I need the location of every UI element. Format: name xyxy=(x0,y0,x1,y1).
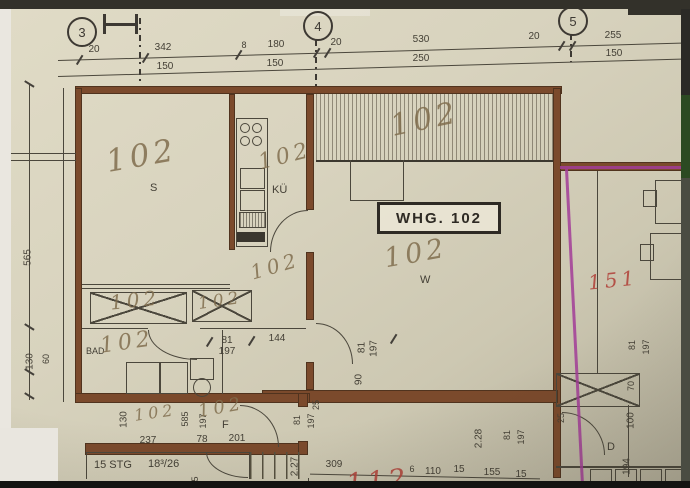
dim: 100 xyxy=(626,406,637,436)
dim: 2.27 xyxy=(290,451,301,483)
chair xyxy=(640,244,654,261)
apartment-number-box: WHG. 102 xyxy=(377,202,501,234)
dim-door: 81 xyxy=(627,333,637,357)
dim-left: 565 xyxy=(23,238,34,278)
room-label-d: D xyxy=(607,441,615,453)
dim-top: 20 xyxy=(84,44,104,55)
photo-edge-right xyxy=(681,9,690,95)
chair xyxy=(643,190,657,207)
dim-top2: 150 xyxy=(150,61,180,72)
dim-bottom: 15 xyxy=(511,469,531,480)
dim-door: 81 xyxy=(357,336,368,360)
dim-bottom: 155 xyxy=(478,467,506,478)
dim: 78 xyxy=(190,434,214,445)
stove-burners xyxy=(239,122,263,148)
dim: 237 xyxy=(132,435,164,446)
dim: 25 xyxy=(556,408,566,428)
dim-top: 342 xyxy=(148,42,178,53)
dim: 144 xyxy=(261,333,293,344)
photo-border-left xyxy=(0,9,11,482)
photo-edge-right-lower xyxy=(681,178,690,482)
dim-top2: 150 xyxy=(599,48,629,59)
dim: 194 xyxy=(622,452,633,482)
room-label-s: S xyxy=(150,182,157,194)
magenta-marker-horizontal xyxy=(560,166,690,169)
dim-door: 197 xyxy=(516,422,526,452)
room-label-ku: KÜ xyxy=(272,184,287,196)
dim: 70 xyxy=(626,374,636,398)
wall-left xyxy=(75,88,82,402)
toilet-tank xyxy=(190,358,214,380)
dim-top: 180 xyxy=(261,39,291,50)
paper-sheet xyxy=(10,8,682,482)
photo-border-bottom-left xyxy=(0,428,58,488)
photo-edge-top xyxy=(0,0,690,9)
kitchen-cabinet xyxy=(240,190,265,211)
stair-steps-label: 15 STG xyxy=(94,459,132,471)
dim-top: 530 xyxy=(405,34,437,45)
dim-door: 197 xyxy=(369,333,380,365)
stair-ratio-label: 18³/26 xyxy=(148,458,179,470)
dim-door: 81 xyxy=(292,408,302,432)
wall-hall-w xyxy=(306,362,314,390)
dim-top: 20 xyxy=(326,37,346,48)
dim-left: 60 xyxy=(41,345,51,373)
dim-door: 81 xyxy=(502,423,512,447)
grid-axis-3-bubble: 3 xyxy=(67,17,97,47)
toilet-bowl xyxy=(193,378,211,397)
kitchen-unit xyxy=(237,232,265,242)
section-marker-icon xyxy=(103,14,138,34)
dim-door: 81 xyxy=(214,335,240,346)
room-label-w: W xyxy=(420,274,430,286)
dim-door: 197 xyxy=(211,346,243,357)
wall-bad-bottom xyxy=(75,393,310,403)
dim-top: 20 xyxy=(524,31,544,42)
balcony-door-recess xyxy=(350,160,404,201)
room-label-f: F xyxy=(222,419,229,431)
dim: 90 xyxy=(354,368,365,392)
photo-edge-bottom xyxy=(0,481,690,488)
wash-basin xyxy=(160,362,188,394)
dim-bottom: 110 xyxy=(420,466,446,477)
floorplan-photo: 3 4 5 20 342 8 180 20 530 20 255 150 150… xyxy=(0,0,690,488)
dim: 2.28 xyxy=(474,423,485,455)
dim: 25 xyxy=(311,395,321,415)
kitchen-sink xyxy=(239,212,266,228)
dim-top: 255 xyxy=(597,30,629,41)
dim: 201 xyxy=(222,433,252,444)
dim-bottom: 15 xyxy=(449,464,469,475)
wall-s-ku xyxy=(229,94,235,250)
bath-tub xyxy=(126,362,160,394)
axis-dash-line xyxy=(315,40,317,86)
dim-left: 130 xyxy=(25,342,36,382)
green-object-right-edge xyxy=(681,95,690,178)
grid-axis-5-bubble: 5 xyxy=(558,6,588,36)
dim-top2: 150 xyxy=(260,58,290,69)
dim: 585 xyxy=(180,404,190,434)
dim-door: 197 xyxy=(641,332,651,362)
dim: 130 xyxy=(119,400,130,440)
wall-hall-w xyxy=(306,252,314,320)
wall-top xyxy=(75,86,562,94)
dim-top2: 250 xyxy=(406,53,436,64)
dim-top: 8 xyxy=(238,40,250,50)
